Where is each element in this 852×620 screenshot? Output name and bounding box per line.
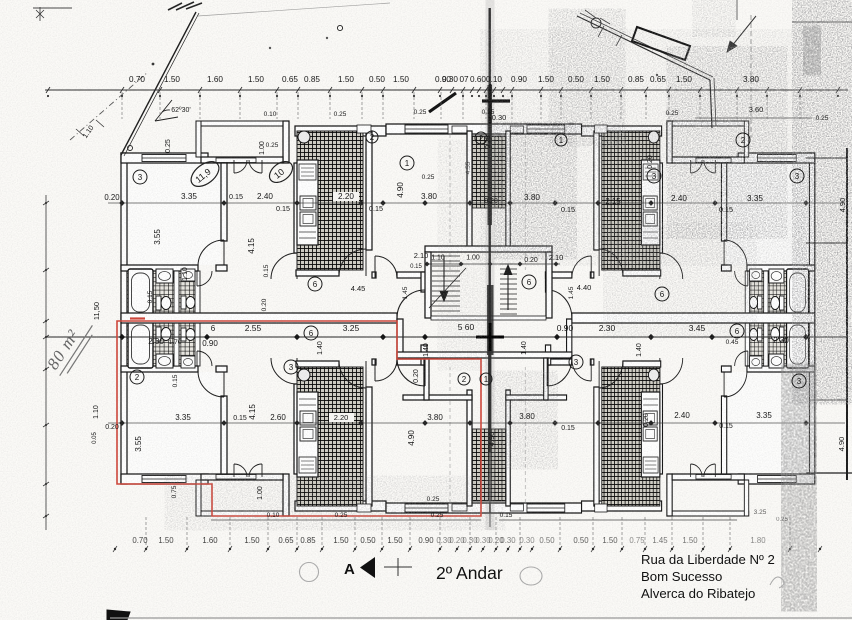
svg-text:0.15: 0.15: [719, 423, 733, 430]
svg-text:0.20: 0.20: [104, 193, 120, 202]
svg-text:0.60: 0.60: [470, 75, 486, 84]
svg-text:6: 6: [527, 278, 532, 287]
svg-text:0.30: 0.30: [442, 75, 458, 84]
svg-text:0.15: 0.15: [229, 192, 243, 201]
svg-text:0.90: 0.90: [557, 323, 574, 333]
svg-text:1.80: 1.80: [750, 536, 766, 545]
svg-text:0.15: 0.15: [263, 264, 270, 277]
svg-text:6: 6: [309, 329, 314, 338]
svg-text:6: 6: [660, 290, 665, 299]
svg-text:3.60: 3.60: [749, 105, 764, 114]
svg-text:0.25: 0.25: [422, 174, 435, 181]
svg-text:5 60: 5 60: [458, 322, 475, 332]
svg-text:0.50: 0.50: [539, 536, 555, 545]
svg-text:6: 6: [735, 327, 740, 336]
svg-text:0.10: 0.10: [264, 111, 277, 118]
svg-text:2.20: 2.20: [334, 413, 349, 422]
svg-text:1.50: 1.50: [676, 75, 692, 84]
svg-text:2: 2: [741, 136, 746, 145]
svg-text:0.15: 0.15: [147, 290, 154, 303]
svg-text:3.80: 3.80: [421, 192, 437, 201]
svg-text:0.85: 0.85: [300, 536, 316, 545]
svg-text:07: 07: [459, 75, 469, 84]
svg-text:0.20: 0.20: [484, 198, 498, 205]
svg-text:2.40: 2.40: [671, 194, 687, 203]
svg-text:Bom Sucesso: Bom Sucesso: [641, 569, 722, 584]
svg-text:1.50: 1.50: [338, 75, 354, 84]
svg-text:1.00: 1.00: [257, 486, 264, 500]
svg-text:0.85: 0.85: [304, 75, 320, 84]
svg-text:1: 1: [559, 136, 564, 145]
svg-text:0.20: 0.20: [524, 257, 538, 264]
svg-text:2.10: 2.10: [414, 251, 429, 260]
svg-text:0.25: 0.25: [165, 139, 172, 153]
svg-text:0.15: 0.15: [500, 512, 513, 519]
svg-text:2: 2: [135, 373, 140, 382]
svg-text:0.25: 0.25: [427, 496, 440, 503]
svg-text:0.25: 0.25: [334, 111, 347, 118]
svg-text:3.25: 3.25: [343, 323, 360, 333]
svg-text:2.30: 2.30: [148, 337, 164, 346]
svg-text:0.20: 0.20: [647, 155, 654, 169]
svg-text:0.25: 0.25: [776, 517, 788, 523]
svg-text:0.20: 0.20: [261, 298, 268, 311]
svg-text:0.15: 0.15: [276, 204, 290, 213]
svg-text:0.15: 0.15: [719, 205, 733, 214]
svg-text:1.50: 1.50: [387, 536, 403, 545]
svg-text:0.10: 0.10: [486, 75, 502, 84]
svg-text:2º Andar: 2º Andar: [436, 563, 503, 583]
svg-text:1.50: 1.50: [602, 536, 618, 545]
svg-text:A: A: [344, 561, 355, 578]
svg-text:0.15: 0.15: [172, 374, 179, 387]
svg-text:4.15: 4.15: [248, 404, 257, 420]
svg-text:0.25: 0.25: [335, 512, 348, 519]
svg-text:4.90: 4.90: [487, 432, 496, 447]
svg-text:3.55: 3.55: [153, 229, 162, 245]
svg-text:1.10: 1.10: [93, 405, 100, 419]
svg-text:1.10: 1.10: [431, 255, 445, 262]
svg-text:3.80: 3.80: [427, 413, 443, 422]
svg-text:2.20: 2.20: [338, 192, 354, 201]
svg-text:4.90: 4.90: [837, 437, 846, 452]
svg-text:2: 2: [370, 133, 375, 142]
svg-text:4.90: 4.90: [838, 198, 847, 213]
svg-text:0.15: 0.15: [369, 204, 383, 213]
svg-text:0.15: 0.15: [410, 264, 422, 270]
svg-text:3.35: 3.35: [747, 194, 763, 203]
svg-text:0.50: 0.50: [360, 536, 376, 545]
svg-text:2.40: 2.40: [257, 192, 273, 201]
svg-text:1.50: 1.50: [538, 75, 554, 84]
svg-text:0.25: 0.25: [666, 110, 679, 117]
svg-text:1.50: 1.50: [248, 75, 264, 84]
svg-text:1.40: 1.40: [317, 341, 324, 355]
svg-text:1.45: 1.45: [402, 286, 409, 299]
svg-text:4.90: 4.90: [396, 182, 405, 198]
svg-text:2: 2: [462, 375, 467, 384]
svg-text:1.00: 1.00: [259, 141, 266, 155]
svg-text:0.30: 0.30: [519, 536, 535, 545]
svg-text:6: 6: [211, 324, 216, 333]
svg-text:2.10: 2.10: [549, 253, 564, 262]
svg-text:1.50: 1.50: [244, 536, 260, 545]
svg-text:3: 3: [652, 172, 657, 181]
svg-text:3.80: 3.80: [743, 75, 759, 84]
svg-text:4.90: 4.90: [407, 430, 416, 446]
svg-text:0.25: 0.25: [414, 109, 427, 116]
svg-text:2.30: 2.30: [773, 336, 789, 345]
svg-text:0.65: 0.65: [278, 536, 294, 545]
svg-text:1.45: 1.45: [652, 536, 668, 545]
svg-text:3.55: 3.55: [134, 436, 143, 452]
svg-text:1.50: 1.50: [333, 536, 349, 545]
svg-text:0.15: 0.15: [233, 415, 247, 422]
svg-text:Alverca do Ribatejo: Alverca do Ribatejo: [641, 586, 755, 601]
svg-text:0.90: 0.90: [511, 75, 527, 84]
svg-text:1.50: 1.50: [393, 75, 409, 84]
svg-text:11,50: 11,50: [92, 302, 101, 320]
svg-text:2.15: 2.15: [605, 197, 621, 206]
svg-text:1.40: 1.40: [521, 341, 528, 355]
svg-text:0.75: 0.75: [171, 485, 178, 498]
svg-text:0.25: 0.25: [431, 512, 444, 519]
svg-text:2.55: 2.55: [245, 323, 262, 333]
svg-text:0.20: 0.20: [105, 424, 119, 431]
svg-text:1.60: 1.60: [202, 536, 218, 545]
svg-text:3.25: 3.25: [754, 509, 767, 516]
svg-text:1.50: 1.50: [682, 536, 698, 545]
svg-text:4.40: 4.40: [577, 283, 592, 292]
svg-text:0.65: 0.65: [282, 75, 298, 84]
svg-text:3: 3: [574, 358, 579, 367]
svg-text:Rua da Liberdade Nº 2: Rua da Liberdade Nº 2: [641, 552, 775, 567]
svg-text:0.15: 0.15: [561, 425, 575, 432]
svg-text:0.20: 0.20: [413, 369, 420, 383]
svg-text:6: 6: [313, 280, 318, 289]
svg-text:0.65: 0.65: [650, 75, 666, 84]
svg-text:0.85: 0.85: [628, 75, 644, 84]
svg-text:2.60: 2.60: [270, 413, 286, 422]
svg-text:1.50: 1.50: [164, 75, 180, 84]
svg-text:3: 3: [795, 172, 800, 181]
svg-text:2.30: 2.30: [599, 323, 616, 333]
svg-text:3: 3: [289, 363, 294, 372]
svg-text:1: 1: [405, 159, 410, 168]
svg-text:0.70: 0.70: [132, 536, 148, 545]
svg-text:1: 1: [484, 375, 489, 384]
svg-text:1.00: 1.00: [466, 255, 480, 262]
svg-text:0.30: 0.30: [500, 536, 516, 545]
svg-text:3.35: 3.35: [756, 411, 772, 420]
svg-text:0.50: 0.50: [369, 75, 385, 84]
svg-text:3.35: 3.35: [175, 413, 191, 422]
svg-text:3.35: 3.35: [181, 192, 197, 201]
svg-text:3.80: 3.80: [519, 412, 535, 421]
svg-text:3: 3: [138, 173, 143, 182]
svg-text:1.50: 1.50: [594, 75, 610, 84]
svg-text:4.45: 4.45: [351, 284, 366, 293]
svg-text:0.75: 0.75: [629, 536, 645, 545]
svg-text:0.20: 0.20: [643, 413, 650, 427]
svg-text:3.45: 3.45: [689, 323, 706, 333]
svg-text:3.80: 3.80: [524, 193, 540, 202]
svg-text:2: 2: [479, 134, 484, 143]
svg-text:1.45: 1.45: [568, 286, 575, 299]
svg-text:0.15: 0.15: [561, 205, 575, 214]
svg-text:1.10: 1.10: [182, 267, 189, 281]
svg-text:0.70: 0.70: [129, 75, 145, 84]
svg-text:4.15: 4.15: [247, 238, 256, 254]
svg-text:0.05: 0.05: [92, 432, 98, 444]
svg-text:0.25: 0.25: [816, 115, 829, 122]
svg-text:0.90: 0.90: [202, 339, 218, 348]
svg-text:1.70: 1.70: [169, 339, 182, 346]
svg-text:0.50: 0.50: [573, 536, 589, 545]
svg-text:2.40: 2.40: [674, 411, 690, 420]
svg-text:4.55: 4.55: [465, 161, 472, 174]
svg-text:0.10: 0.10: [267, 512, 280, 519]
svg-text:3: 3: [797, 377, 802, 386]
svg-text:0.50: 0.50: [568, 75, 584, 84]
svg-text:1.50: 1.50: [158, 536, 174, 545]
svg-text:0.25: 0.25: [266, 142, 279, 149]
svg-text:0.90: 0.90: [418, 536, 434, 545]
svg-text:0.30: 0.30: [492, 113, 507, 122]
svg-text:1.60: 1.60: [207, 75, 223, 84]
svg-text:1.40: 1.40: [423, 343, 430, 357]
svg-text:1.40: 1.40: [636, 343, 643, 357]
svg-text:0.45: 0.45: [726, 339, 739, 346]
